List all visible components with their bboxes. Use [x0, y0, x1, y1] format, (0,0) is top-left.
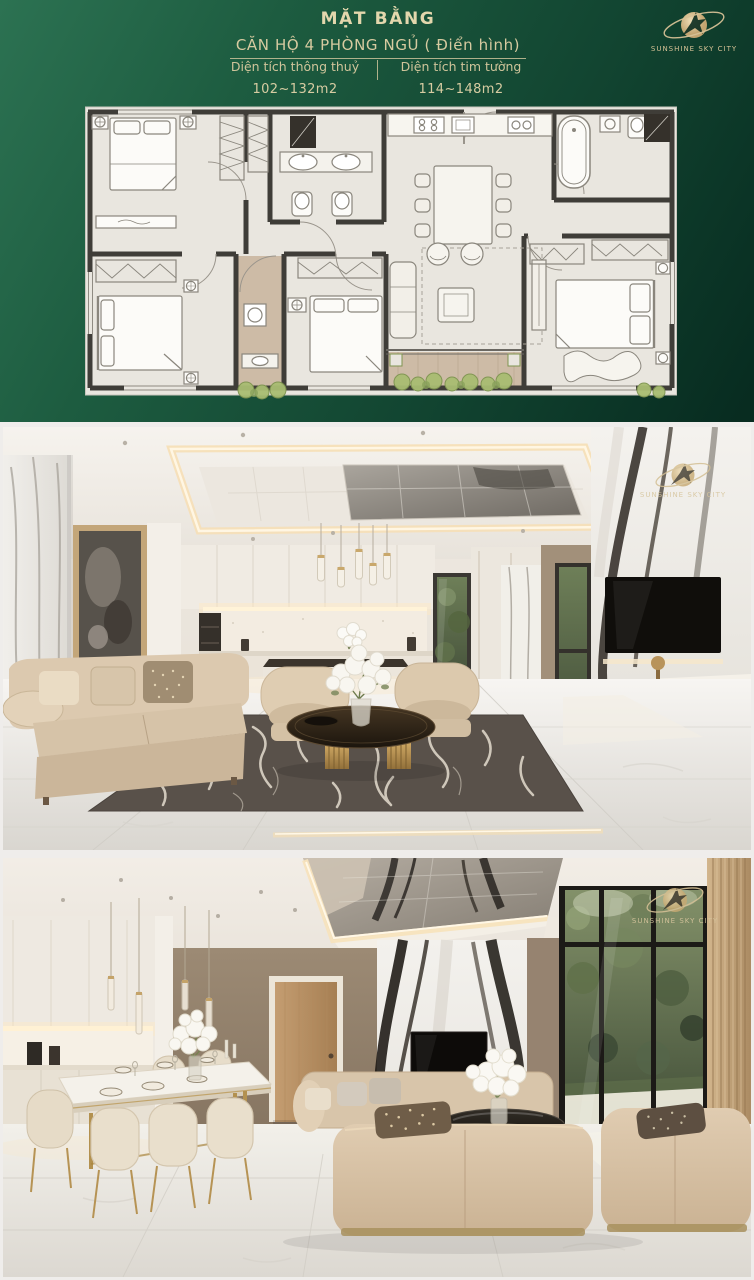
page-title: MẶT BẰNG	[80, 9, 676, 29]
living-kitchen-render: SUNSHINE SKY CITY	[3, 427, 751, 850]
brochure-page: MẶT BẰNG CĂN HỘ 4 PHÒNG NGỦ ( Điển hình)…	[0, 0, 754, 1280]
logo-brand-text: SUNSHINE SKY CITY	[651, 45, 737, 53]
spec-net-area: Diện tích thông thuỷ 102~132m2	[212, 61, 378, 96]
brand-logo: SUNSHINE SKY CITY	[644, 4, 744, 62]
spec-net-area-value: 102~132m2	[212, 83, 378, 96]
table-tray	[304, 716, 338, 726]
floor-plan	[84, 104, 678, 400]
photo-living-kitchen: SUNSHINE SKY CITY	[0, 422, 754, 854]
area-specs: Diện tích thông thuỷ 102~132m2 Diện tích…	[212, 61, 544, 96]
spec-gross-area-value: 114~148m2	[378, 83, 544, 96]
coffee-machine	[27, 1042, 42, 1065]
photo-dining-living: SUNSHINE SKY CITY	[0, 854, 754, 1280]
gold-decor	[651, 656, 665, 670]
spec-gross-area: Diện tích tim tường 114~148m2	[378, 61, 544, 96]
door-handle	[329, 1054, 334, 1059]
sofa-section-left	[333, 1124, 593, 1236]
watermark-text: SUNSHINE SKY CITY	[640, 491, 726, 499]
wall-artwork	[73, 525, 147, 665]
dining-set	[415, 166, 511, 244]
watermark-text: SUNSHINE SKY CITY	[632, 917, 718, 925]
spec-gross-area-label: Diện tích tim tường	[378, 61, 544, 74]
dining-living-render: SUNSHINE SKY CITY	[3, 858, 751, 1277]
spec-net-area-label: Diện tích thông thuỷ	[212, 61, 378, 74]
kitchen-counters	[388, 114, 552, 136]
spec-column-divider	[377, 60, 378, 80]
apartment-subtitle: CĂN HỘ 4 PHÒNG NGỦ ( Điển hình)	[80, 36, 676, 54]
